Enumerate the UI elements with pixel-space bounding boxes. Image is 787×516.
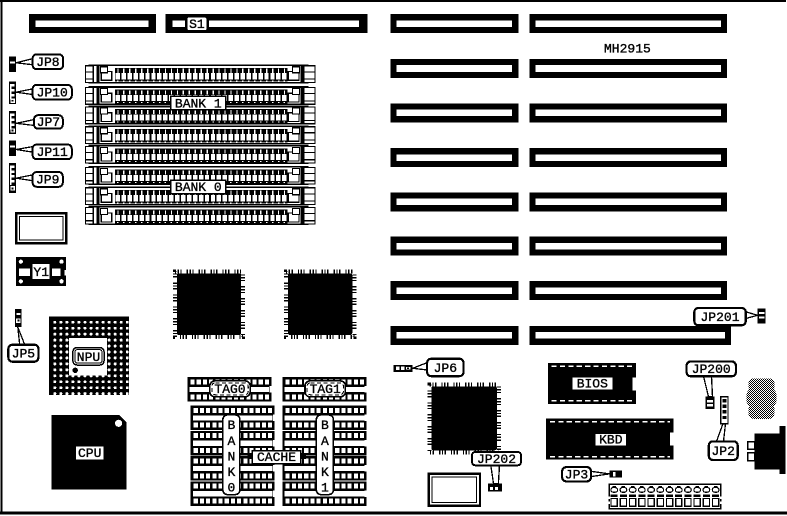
svg-text:JP201: JP201 bbox=[700, 310, 739, 325]
svg-text:MH2915: MH2915 bbox=[604, 41, 651, 56]
svg-text:JP7: JP7 bbox=[37, 115, 60, 130]
svg-text:A: A bbox=[321, 434, 329, 449]
svg-text:JP10: JP10 bbox=[37, 86, 68, 101]
svg-text:B: B bbox=[321, 418, 329, 433]
svg-text:N: N bbox=[227, 449, 235, 464]
svg-text:JP9: JP9 bbox=[36, 173, 59, 188]
svg-text:CPU: CPU bbox=[78, 446, 101, 461]
svg-text:TAG0: TAG0 bbox=[214, 382, 245, 397]
svg-text:N: N bbox=[321, 449, 329, 464]
svg-text:B: B bbox=[227, 418, 235, 433]
svg-text:K: K bbox=[321, 465, 329, 480]
svg-text:JP3: JP3 bbox=[565, 468, 588, 483]
svg-text:BANK 1: BANK 1 bbox=[175, 96, 222, 111]
svg-text:JP202: JP202 bbox=[477, 452, 516, 467]
svg-text:JP5: JP5 bbox=[12, 347, 35, 362]
svg-text:JP2: JP2 bbox=[711, 444, 734, 459]
svg-text:Y1: Y1 bbox=[33, 265, 49, 280]
svg-text:CACHE: CACHE bbox=[257, 450, 296, 465]
svg-text:0: 0 bbox=[227, 481, 235, 496]
svg-text:JP8: JP8 bbox=[36, 55, 59, 70]
svg-text:BANK 0: BANK 0 bbox=[175, 180, 222, 195]
svg-text:JP11: JP11 bbox=[37, 145, 68, 160]
svg-text:A: A bbox=[227, 434, 235, 449]
svg-text:TAG1: TAG1 bbox=[310, 382, 341, 397]
svg-text:S1: S1 bbox=[189, 17, 205, 32]
svg-text:1: 1 bbox=[321, 481, 329, 496]
svg-text:JP200: JP200 bbox=[692, 362, 731, 377]
svg-text:NPU: NPU bbox=[77, 350, 100, 365]
svg-text:KBD: KBD bbox=[599, 433, 623, 448]
svg-text:BIOS: BIOS bbox=[577, 377, 608, 392]
svg-text:JP6: JP6 bbox=[434, 361, 457, 376]
svg-text:K: K bbox=[227, 465, 235, 480]
